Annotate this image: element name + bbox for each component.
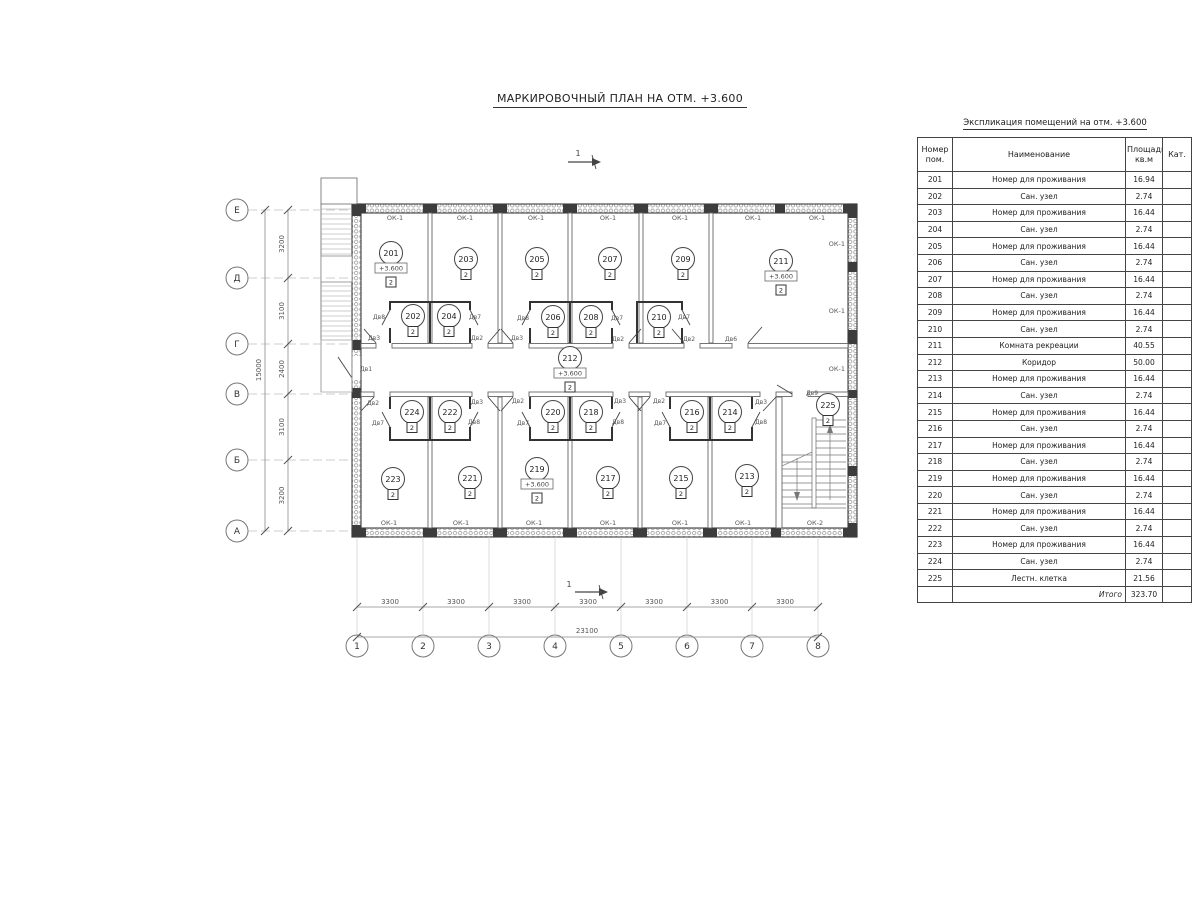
svg-text:2: 2	[745, 488, 749, 496]
table-row: 217Номер для проживания16.44	[918, 437, 1192, 454]
svg-text:Дв7: Дв7	[654, 420, 666, 427]
svg-text:В: В	[234, 390, 240, 400]
svg-text:209: 209	[675, 255, 690, 264]
svg-text:23100: 23100	[576, 627, 598, 635]
table-row: 208Сан. узел2.74	[918, 288, 1192, 305]
svg-text:ОК-1: ОК-1	[453, 519, 469, 527]
svg-text:Дв2: Дв2	[471, 335, 483, 342]
svg-text:2: 2	[391, 491, 395, 499]
svg-text:+3.600: +3.600	[769, 273, 793, 281]
svg-text:2: 2	[606, 490, 610, 498]
svg-text:ОК-1: ОК-1	[829, 365, 845, 373]
svg-text:218: 218	[583, 408, 598, 417]
table-row: 209Номер для проживания16.44	[918, 304, 1192, 321]
svg-text:ОК-1: ОК-1	[829, 307, 845, 315]
svg-text:2: 2	[464, 271, 468, 279]
svg-text:2: 2	[728, 424, 732, 432]
svg-text:ОК-1: ОК-1	[745, 214, 761, 222]
svg-text:15000: 15000	[255, 359, 263, 381]
svg-text:2: 2	[681, 271, 685, 279]
svg-text:ОК-1: ОК-1	[809, 214, 825, 222]
table-row: 222Сан. узел2.74	[918, 520, 1192, 537]
svg-text:2: 2	[389, 279, 393, 287]
svg-text:ОК-1: ОК-1	[672, 214, 688, 222]
svg-text:3300: 3300	[776, 598, 794, 606]
svg-text:212: 212	[562, 354, 577, 363]
svg-text:ОК-2: ОК-2	[807, 519, 823, 527]
svg-text:Дв2: Дв2	[512, 398, 524, 405]
table-row: 220Сан. узел2.74	[918, 487, 1192, 504]
svg-text:Дв3: Дв3	[368, 335, 380, 342]
svg-text:213: 213	[739, 472, 754, 481]
col-header-cat: Кат.	[1163, 138, 1192, 172]
svg-text:2: 2	[411, 328, 415, 336]
svg-text:1: 1	[566, 580, 571, 589]
svg-text:Г: Г	[234, 340, 240, 350]
table-row: 218Сан. узел2.74	[918, 454, 1192, 471]
table-row: 205Номер для проживания16.44	[918, 238, 1192, 255]
svg-text:3200: 3200	[278, 235, 286, 253]
blueprint-page: { "page": { "title": "МАРКИРОВОЧНЫЙ ПЛАН…	[0, 0, 1200, 900]
table-row: 215Номер для проживания16.44	[918, 404, 1192, 421]
svg-text:2: 2	[410, 424, 414, 432]
svg-text:3300: 3300	[513, 598, 531, 606]
svg-text:Дв2: Дв2	[367, 400, 379, 407]
table-row: 219Номер для проживания16.44	[918, 470, 1192, 487]
svg-text:220: 220	[545, 408, 560, 417]
svg-text:Дв8: Дв8	[517, 315, 529, 322]
svg-text:2400: 2400	[278, 360, 286, 378]
svg-text:Дв6: Дв6	[725, 336, 737, 343]
svg-text:2: 2	[608, 271, 612, 279]
svg-text:216: 216	[684, 408, 699, 417]
svg-text:219: 219	[529, 465, 544, 474]
svg-text:1: 1	[575, 149, 580, 158]
svg-text:2: 2	[535, 495, 539, 503]
svg-text:7: 7	[749, 642, 755, 652]
svg-text:Дв7: Дв7	[372, 420, 384, 427]
svg-text:201: 201	[383, 249, 398, 258]
svg-text:Дв2: Дв2	[612, 336, 624, 343]
svg-text:3: 3	[486, 642, 492, 652]
svg-text:2: 2	[657, 329, 661, 337]
svg-text:3100: 3100	[278, 418, 286, 436]
svg-text:2: 2	[589, 424, 593, 432]
table-row: 210Сан. узел2.74	[918, 321, 1192, 338]
table-row: 212Коридор50.00	[918, 354, 1192, 371]
svg-text:ОК-1: ОК-1	[381, 519, 397, 527]
svg-text:2: 2	[448, 424, 452, 432]
svg-text:Дв8: Дв8	[755, 419, 767, 426]
svg-text:2: 2	[551, 329, 555, 337]
table-row: 213Номер для проживания16.44	[918, 371, 1192, 388]
svg-text:Дв7: Дв7	[678, 314, 690, 321]
corridor-walls	[361, 344, 848, 397]
svg-text:+3.600: +3.600	[558, 370, 582, 378]
table-row: 216Сан. узел2.74	[918, 420, 1192, 437]
table-row: 207Номер для проживания16.44	[918, 271, 1192, 288]
drawing-title: МАРКИРОВОЧНЫЙ ПЛАН НА ОТМ. +3.600	[430, 92, 810, 105]
svg-text:ОК-1: ОК-1	[672, 519, 688, 527]
col-header-number: Номер пом.	[918, 138, 953, 172]
staircase-225	[782, 418, 846, 508]
svg-text:221: 221	[462, 474, 477, 483]
svg-text:205: 205	[529, 255, 544, 264]
svg-text:222: 222	[442, 408, 457, 417]
svg-text:2: 2	[468, 490, 472, 498]
room-schedule-table: Номер пом. Наименование Площадь кв.м Кат…	[917, 137, 1192, 603]
col-header-name: Наименование	[953, 138, 1126, 172]
table-row: 211Комната рекреации40.55	[918, 337, 1192, 354]
table-row: 201Номер для проживания16.94	[918, 172, 1192, 189]
svg-text:Дв3: Дв3	[511, 335, 523, 342]
svg-text:210: 210	[651, 313, 666, 322]
svg-text:204: 204	[441, 312, 456, 321]
col-header-area: Площадь кв.м	[1126, 138, 1163, 172]
svg-text:3300: 3300	[579, 598, 597, 606]
svg-text:Дв9: Дв9	[806, 390, 818, 397]
svg-text:Дв8: Дв8	[468, 419, 480, 426]
svg-text:3300: 3300	[711, 598, 729, 606]
svg-text:3200: 3200	[278, 487, 286, 505]
svg-text:ОК-1: ОК-1	[528, 214, 544, 222]
table-row: 204Сан. узел2.74	[918, 221, 1192, 238]
svg-text:2: 2	[551, 424, 555, 432]
svg-text:208: 208	[583, 313, 598, 322]
svg-text:Дв3: Дв3	[614, 398, 626, 405]
svg-text:+3.600: +3.600	[379, 265, 403, 273]
svg-text:217: 217	[600, 474, 615, 483]
svg-text:Дв7: Дв7	[517, 420, 529, 427]
svg-text:6: 6	[684, 642, 690, 652]
svg-text:4: 4	[552, 642, 558, 652]
table-row: 203Номер для проживания16.44	[918, 205, 1192, 222]
svg-text:214: 214	[722, 408, 737, 417]
table-row: 202Сан. узел2.74	[918, 188, 1192, 205]
svg-text:202: 202	[405, 312, 420, 321]
svg-text:Дв2: Дв2	[683, 336, 695, 343]
svg-text:2: 2	[568, 384, 572, 392]
room-schedule: Экспликация помещений на отм. +3.600 Ном…	[917, 118, 1193, 603]
svg-text:5: 5	[618, 642, 624, 652]
svg-text:8: 8	[815, 642, 821, 652]
svg-text:ОК-1: ОК-1	[735, 519, 751, 527]
svg-text:Дв3: Дв3	[471, 399, 483, 406]
svg-text:3300: 3300	[381, 598, 399, 606]
svg-text:ОК-1: ОК-1	[829, 240, 845, 248]
svg-text:203: 203	[458, 255, 473, 264]
table-row: 224Сан. узел2.74	[918, 553, 1192, 570]
svg-text:2: 2	[589, 329, 593, 337]
table-row: 225Лестн. клетка21.56	[918, 570, 1192, 587]
table-title: Экспликация помещений на отм. +3.600	[917, 118, 1193, 128]
svg-text:Дв2: Дв2	[653, 398, 665, 405]
svg-text:3100: 3100	[278, 302, 286, 320]
svg-text:207: 207	[602, 255, 617, 264]
svg-text:Б: Б	[234, 456, 240, 466]
table-row: 214Сан. узел2.74	[918, 387, 1192, 404]
svg-text:Е: Е	[234, 206, 240, 216]
table-row: 206Сан. узел2.74	[918, 254, 1192, 271]
svg-text:206: 206	[545, 313, 560, 322]
svg-text:2: 2	[826, 417, 830, 425]
svg-text:Дв7: Дв7	[611, 315, 623, 322]
svg-text:ОК-1: ОК-1	[387, 214, 403, 222]
svg-text:Дв8: Дв8	[612, 419, 624, 426]
svg-text:225: 225	[820, 401, 835, 410]
svg-text:2: 2	[690, 424, 694, 432]
svg-text:А: А	[234, 527, 241, 537]
svg-text:215: 215	[673, 474, 688, 483]
drawing-title-text: МАРКИРОВОЧНЫЙ ПЛАН НА ОТМ. +3.600	[493, 92, 747, 108]
svg-text:Д: Д	[233, 274, 240, 284]
svg-text:211: 211	[773, 257, 788, 266]
svg-text:Дв3: Дв3	[755, 399, 767, 406]
svg-text:2: 2	[447, 328, 451, 336]
svg-text:3300: 3300	[645, 598, 663, 606]
svg-text:2: 2	[535, 271, 539, 279]
table-row: 223Номер для проживания16.44	[918, 537, 1192, 554]
svg-text:ОК-1: ОК-1	[526, 519, 542, 527]
table-row: 221Номер для проживания16.44	[918, 503, 1192, 520]
svg-text:223: 223	[385, 475, 400, 484]
svg-text:ОК-1: ОК-1	[600, 519, 616, 527]
svg-text:2: 2	[779, 287, 783, 295]
table-header-row: Номер пом. Наименование Площадь кв.м Кат…	[918, 138, 1192, 172]
svg-text:Дв1: Дв1	[360, 366, 372, 373]
svg-text:ОК-1: ОК-1	[457, 214, 473, 222]
svg-text:1: 1	[354, 642, 360, 652]
table-total-row: Итого323.70	[918, 586, 1192, 603]
svg-text:+3.600: +3.600	[525, 481, 549, 489]
svg-text:Дв7: Дв7	[469, 314, 481, 321]
svg-text:3300: 3300	[447, 598, 465, 606]
svg-text:Дв8: Дв8	[373, 314, 385, 321]
svg-text:ОК-1: ОК-1	[600, 214, 616, 222]
svg-text:224: 224	[404, 408, 419, 417]
svg-text:2: 2	[420, 642, 426, 652]
svg-text:2: 2	[679, 490, 683, 498]
